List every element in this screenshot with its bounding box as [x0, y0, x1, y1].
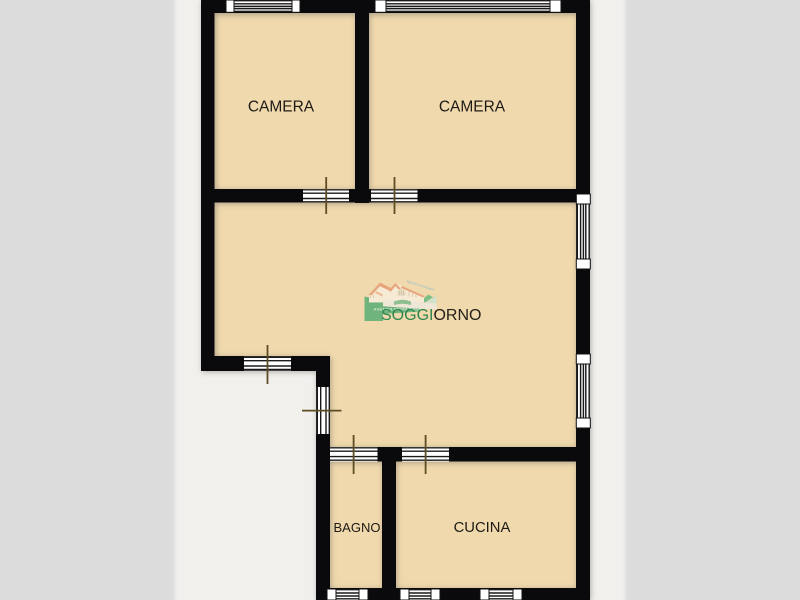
svg-text:CAMERA: CAMERA [248, 98, 315, 115]
svg-text:BAGNO: BAGNO [334, 520, 381, 535]
svg-text:CAMERA: CAMERA [439, 98, 506, 115]
svg-text:CUCINA: CUCINA [454, 520, 511, 536]
svg-text:SOGGIORNO: SOGGIORNO [381, 307, 481, 324]
